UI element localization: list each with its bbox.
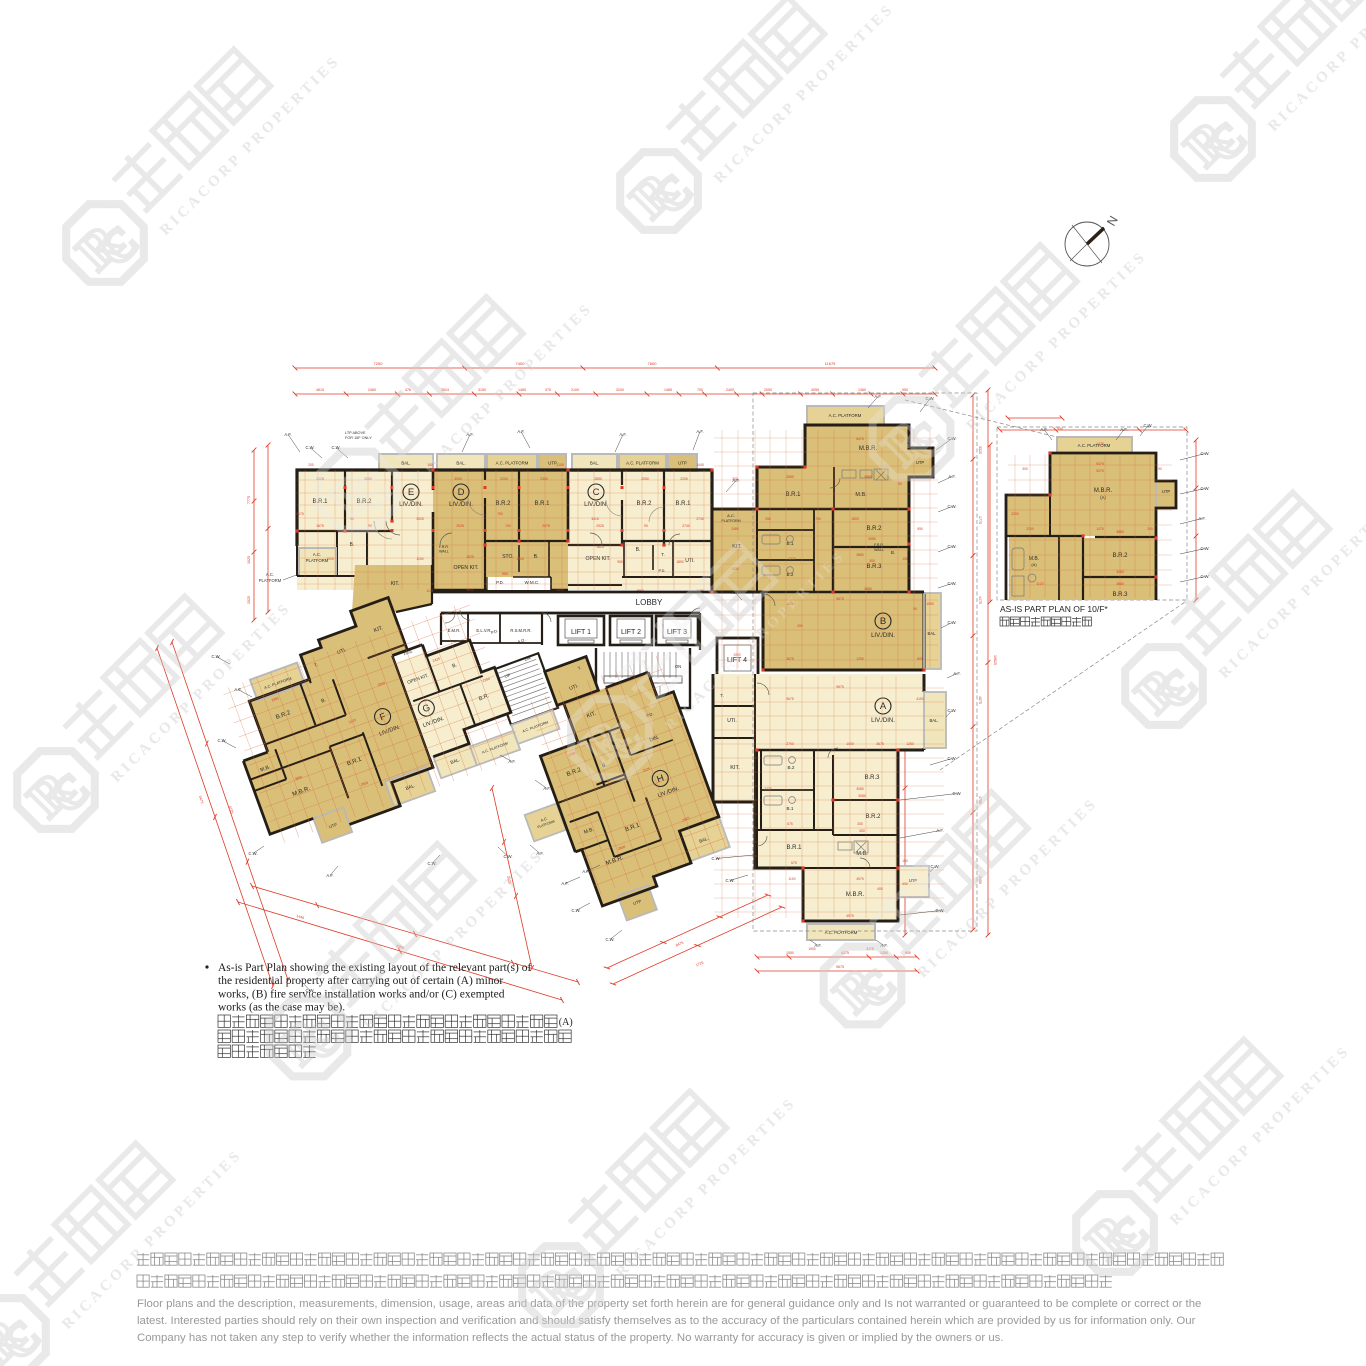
svg-text:A.F.: A.F. [543, 786, 550, 791]
svg-text:1360: 1360 [858, 388, 866, 392]
svg-text:T.: T. [661, 552, 665, 557]
svg-text:2740: 2740 [682, 524, 690, 528]
svg-text:B.R.2: B.R.2 [865, 814, 881, 820]
svg-text:1100: 1100 [426, 589, 433, 593]
svg-text:D: D [458, 487, 465, 498]
svg-text:C.W.: C.W. [947, 756, 956, 761]
svg-text:2300: 2300 [540, 477, 548, 481]
svg-text:200: 200 [1147, 527, 1153, 531]
svg-text:7250: 7250 [374, 361, 384, 366]
svg-text:4875: 4875 [978, 696, 982, 704]
svg-text:2200: 2200 [500, 477, 508, 481]
svg-text:Floor plans and the descriptio: Floor plans and the description, measure… [137, 1298, 1201, 1310]
svg-text:A.F.: A.F. [732, 478, 739, 483]
svg-text:BAL.: BAL. [401, 461, 410, 466]
svg-text:A.F.: A.F. [326, 873, 333, 878]
svg-text:B.R.1: B.R.1 [786, 845, 802, 851]
svg-text:BAL.: BAL. [590, 461, 599, 466]
svg-text:LIV./DIN.: LIV./DIN. [871, 633, 895, 639]
svg-text:C.W.: C.W. [711, 856, 720, 861]
svg-text:C.W.: C.W. [947, 708, 956, 713]
svg-text:E: E [408, 487, 414, 498]
svg-text:FOR 15F ONLY: FOR 15F ONLY [345, 436, 372, 440]
svg-text:9675: 9675 [786, 697, 794, 701]
svg-text:1446: 1446 [296, 914, 305, 920]
svg-text:A.F.: A.F. [1120, 427, 1127, 432]
svg-text:B.: B. [891, 550, 895, 555]
svg-text:B.R.1: B.R.1 [785, 492, 801, 498]
svg-text:3880: 3880 [1116, 530, 1124, 534]
svg-text:P.D.: P.D. [659, 569, 666, 573]
svg-text:3880: 3880 [856, 553, 864, 557]
svg-text:800: 800 [917, 657, 923, 661]
svg-text:C.W.: C.W. [503, 854, 512, 859]
svg-text:B.R.1: B.R.1 [534, 501, 550, 507]
svg-text:2740: 2740 [696, 517, 704, 521]
svg-text:1675: 1675 [316, 524, 324, 528]
svg-text:3150: 3150 [478, 388, 486, 392]
svg-text:LIFT 1: LIFT 1 [571, 629, 591, 636]
svg-text:A.F.: A.F. [948, 474, 955, 479]
svg-text:A.F.: A.F. [953, 671, 960, 676]
svg-text:A: A [880, 701, 887, 712]
svg-text:C.W.: C.W. [947, 544, 956, 549]
svg-text:1550: 1550 [786, 951, 794, 955]
svg-text:2175: 2175 [296, 512, 304, 516]
svg-text:3325: 3325 [978, 446, 982, 454]
svg-text:2700: 2700 [786, 742, 794, 746]
svg-text:11675: 11675 [825, 361, 837, 366]
svg-text:950: 950 [1057, 427, 1063, 431]
svg-text:4150: 4150 [916, 697, 924, 701]
svg-text:OPEN KIT.: OPEN KIT. [585, 556, 610, 562]
svg-text:A.F.: A.F. [234, 687, 241, 692]
svg-text:A.C. PLATFORM: A.C. PLATFORM [829, 413, 862, 418]
svg-text:2650: 2650 [786, 475, 794, 479]
svg-text:A.F.: A.F. [619, 432, 626, 437]
svg-text:BAL.: BAL. [927, 631, 936, 636]
svg-text:5475: 5475 [856, 437, 864, 441]
svg-text:3200: 3200 [616, 388, 624, 392]
svg-text:2200: 2200 [1026, 527, 1034, 531]
svg-text:2200: 2200 [680, 477, 688, 481]
svg-text:B.R.3: B.R.3 [864, 775, 880, 781]
svg-text:1725: 1725 [695, 961, 704, 968]
svg-text:200: 200 [308, 463, 314, 467]
svg-text:A.F.: A.F. [582, 869, 589, 874]
svg-text:675: 675 [791, 861, 797, 865]
svg-text:As-is Part Plan showing the ex: As-is Part Plan showing the existing lay… [218, 962, 531, 974]
svg-text:2460: 2460 [368, 388, 376, 392]
svg-text:3080: 3080 [868, 537, 876, 541]
svg-text:C.W.: C.W. [1200, 486, 1209, 491]
svg-text:700: 700 [697, 388, 703, 392]
svg-text:B.: B. [636, 547, 641, 553]
svg-text:300: 300 [869, 559, 875, 563]
svg-text:B.2: B.2 [788, 765, 795, 770]
svg-text:2480: 2480 [731, 527, 739, 531]
svg-text:90: 90 [644, 524, 648, 528]
svg-text:2105: 2105 [556, 463, 564, 467]
svg-text:750: 750 [497, 512, 503, 516]
svg-text:A.C.: A.C. [266, 572, 274, 577]
svg-text:LTP ABOVE: LTP ABOVE [345, 431, 366, 435]
svg-text:3880: 3880 [864, 475, 872, 479]
svg-text:B.R.3: B.R.3 [866, 564, 882, 570]
svg-text:2400: 2400 [726, 388, 734, 392]
svg-text:C: C [593, 487, 600, 498]
svg-text:C.W.: C.W. [1200, 546, 1209, 551]
svg-text:B.R.2: B.R.2 [636, 501, 652, 507]
svg-text:3880: 3880 [864, 587, 872, 591]
svg-text:B: B [880, 616, 886, 627]
svg-text:A.F.: A.F. [814, 943, 821, 948]
svg-text:A.F.: A.F. [561, 881, 568, 886]
svg-text:A.F.: A.F. [1040, 427, 1047, 432]
svg-text:B.: B. [534, 554, 539, 560]
svg-text:3415: 3415 [591, 517, 599, 521]
svg-text:C.W.: C.W. [947, 504, 956, 509]
svg-text:7775: 7775 [247, 496, 251, 504]
svg-text:1623: 1623 [596, 545, 604, 549]
svg-text:OPEN KIT.: OPEN KIT. [453, 565, 478, 571]
svg-text:1025: 1025 [247, 556, 251, 564]
svg-text:Company has not taken any step: Company has not taken any step to verify… [137, 1332, 1004, 1344]
svg-text:1775: 1775 [978, 516, 982, 524]
svg-text:BAL.: BAL. [456, 461, 465, 466]
svg-text:A.F.: A.F. [1198, 516, 1205, 521]
svg-text:A.F.: A.F. [517, 429, 524, 434]
svg-text:1800: 1800 [851, 517, 859, 521]
svg-text:1475: 1475 [1096, 527, 1104, 531]
svg-text:P.D.: P.D. [490, 628, 499, 635]
svg-text:PLATFORM: PLATFORM [259, 578, 282, 583]
svg-text:2050: 2050 [764, 388, 772, 392]
svg-text:C.W.: C.W. [725, 878, 734, 883]
svg-text:1465: 1465 [518, 388, 526, 392]
svg-text:A.C. PLATFORM: A.C. PLATFORM [496, 461, 529, 466]
svg-text:2850: 2850 [594, 477, 602, 481]
svg-text:1475: 1475 [1096, 442, 1104, 446]
svg-text:5475: 5475 [1096, 469, 1104, 473]
svg-text:N: N [1104, 214, 1121, 229]
svg-text:B.R.3: B.R.3 [1112, 592, 1128, 598]
svg-text:B.R.2: B.R.2 [495, 501, 511, 507]
svg-text:1625: 1625 [466, 555, 474, 559]
svg-text:2925: 2925 [456, 524, 464, 528]
svg-text:LOBBY: LOBBY [636, 598, 663, 607]
svg-text:R.S.M.R.R.: R.S.M.R.R. [510, 628, 531, 633]
svg-text:150: 150 [902, 557, 908, 561]
svg-text:C.W.: C.W. [952, 791, 961, 796]
svg-text:1890: 1890 [676, 560, 684, 564]
svg-text:1465: 1465 [664, 388, 672, 392]
svg-text:90: 90 [1158, 467, 1162, 471]
svg-text:4475: 4475 [978, 596, 982, 604]
svg-text:C.W.: C.W. [571, 908, 580, 913]
svg-text:4615: 4615 [316, 388, 324, 392]
svg-text:8475: 8475 [675, 941, 684, 948]
svg-text:1000: 1000 [846, 742, 854, 746]
svg-text:300: 300 [857, 822, 863, 826]
svg-text:C.W.: C.W. [1200, 574, 1209, 579]
svg-text:400: 400 [877, 887, 883, 891]
svg-text:150: 150 [902, 859, 908, 863]
svg-text:1500: 1500 [926, 602, 934, 606]
svg-text:A.C. PLATFORM: A.C. PLATFORM [626, 461, 659, 466]
svg-text:A.F.: A.F. [936, 828, 943, 833]
svg-text:A.C.: A.C. [313, 552, 321, 557]
svg-text:950: 950 [902, 388, 908, 392]
svg-text:3025: 3025 [416, 517, 424, 521]
svg-text:B.R.2: B.R.2 [866, 526, 882, 532]
svg-text:1100: 1100 [416, 557, 423, 561]
svg-text:1025: 1025 [326, 557, 334, 561]
svg-text:675: 675 [787, 822, 793, 826]
svg-text:2230: 2230 [788, 557, 796, 561]
svg-text:4725: 4725 [228, 805, 234, 814]
svg-text:3080: 3080 [858, 794, 866, 798]
svg-text:C.W.: C.W. [305, 445, 314, 450]
svg-text:latest. Interested parties sho: latest. Interested parties should rely o… [137, 1315, 1196, 1327]
svg-text:3675: 3675 [876, 742, 884, 746]
svg-text:300: 300 [1022, 467, 1028, 471]
svg-text:750: 750 [815, 517, 821, 521]
svg-text:RICACORP PROPERTIES: RICACORP PROPERTIES [1216, 495, 1366, 681]
svg-text:A.F.: A.F. [284, 432, 291, 437]
svg-text:2200: 2200 [1011, 512, 1019, 516]
svg-text:1625: 1625 [516, 557, 524, 561]
svg-text:WALL: WALL [439, 550, 449, 554]
svg-text:UTI.: UTI. [727, 718, 736, 724]
svg-text:300: 300 [859, 829, 865, 833]
svg-text:F.R.R.: F.R.R. [874, 543, 884, 547]
svg-text:19825: 19825 [993, 655, 997, 665]
svg-text:BAL.: BAL. [929, 718, 938, 723]
svg-text:F.R.R.: F.R.R. [439, 545, 449, 549]
svg-text:375: 375 [545, 388, 551, 392]
svg-text:RICACORP PROPERTIES: RICACORP PROPERTIES [1265, 0, 1366, 135]
svg-text:C.W.: C.W. [605, 937, 614, 942]
svg-text:C.W.: C.W. [947, 581, 956, 586]
svg-text:(A): (A) [1031, 562, 1037, 567]
svg-text:C.W.: C.W. [1143, 423, 1152, 428]
svg-text:C.W.: C.W. [947, 620, 956, 625]
svg-text:C.W.: C.W. [248, 851, 257, 856]
svg-text:3880: 3880 [1116, 582, 1124, 586]
svg-text:1445: 1445 [696, 463, 704, 467]
svg-text:3675: 3675 [786, 657, 794, 661]
svg-text:UTP: UTP [678, 461, 687, 466]
svg-text:2230: 2230 [764, 787, 772, 791]
svg-text:WALL: WALL [874, 548, 884, 552]
svg-text:(A): (A) [559, 1017, 573, 1028]
svg-text:C.W.: C.W. [1200, 451, 1209, 456]
svg-text:ON: ON [675, 664, 681, 669]
svg-text:200: 200 [797, 624, 803, 628]
svg-text:5475: 5475 [1096, 462, 1104, 466]
svg-text:M.B.R.: M.B.R. [846, 892, 865, 898]
svg-text:1100: 1100 [788, 877, 795, 881]
svg-text:PLATFORM: PLATFORM [306, 558, 329, 563]
svg-text:4975: 4975 [846, 914, 854, 918]
svg-text:A.F.: A.F. [508, 759, 515, 764]
svg-text:C.W.: C.W. [211, 654, 220, 659]
svg-text:LIV./DIN.: LIV./DIN. [871, 718, 895, 724]
svg-text:3080: 3080 [1116, 570, 1124, 574]
svg-text:UTP: UTP [1162, 489, 1171, 494]
svg-text:B.1: B.1 [787, 806, 794, 811]
svg-text:4055: 4055 [811, 388, 819, 392]
svg-text:3080: 3080 [856, 787, 864, 791]
svg-text:2575: 2575 [542, 524, 550, 528]
svg-text:E.M.R.: E.M.R. [448, 628, 461, 633]
svg-text:A.C. PLATFORM: A.C. PLATFORM [1078, 443, 1111, 448]
svg-text:90: 90 [898, 482, 902, 486]
svg-text:A.C.: A.C. [727, 513, 735, 518]
svg-text:KIT.: KIT. [730, 765, 740, 771]
svg-text:1250: 1250 [906, 742, 914, 746]
svg-text:B.R.1: B.R.1 [675, 501, 691, 507]
svg-text:M.B.R.: M.B.R. [1094, 488, 1113, 494]
svg-text:90: 90 [913, 607, 917, 611]
svg-text:2925: 2925 [596, 524, 604, 528]
svg-text:2025: 2025 [247, 596, 251, 604]
svg-text:1120: 1120 [1036, 582, 1043, 586]
svg-text:A.F.: A.F. [874, 394, 881, 399]
svg-text:2050: 2050 [641, 477, 649, 481]
svg-text:3000: 3000 [454, 477, 462, 481]
svg-text:9675: 9675 [836, 597, 844, 601]
svg-text:9475: 9475 [198, 795, 204, 804]
svg-text:LIFT 2: LIFT 2 [621, 629, 641, 636]
svg-text:950: 950 [502, 572, 508, 576]
svg-text:M.B.: M.B. [855, 492, 867, 498]
svg-text:950: 950 [917, 527, 923, 531]
svg-text:4975: 4975 [856, 877, 864, 881]
svg-text:1250: 1250 [856, 657, 864, 661]
svg-text:476: 476 [405, 388, 411, 392]
svg-text:7600: 7600 [648, 361, 658, 366]
svg-text:950: 950 [617, 560, 623, 564]
svg-text:9675: 9675 [836, 685, 844, 689]
svg-text:A.F.: A.F. [696, 429, 703, 434]
svg-text:(A): (A) [1100, 495, 1106, 500]
svg-text:250: 250 [765, 517, 771, 521]
svg-text:C.W.: C.W. [217, 738, 226, 743]
svg-text:AS-IS PART PLAN OF 10/F*: AS-IS PART PLAN OF 10/F* [1000, 604, 1108, 614]
svg-text:B.R.2: B.R.2 [1112, 553, 1128, 559]
svg-text:2100: 2100 [571, 388, 579, 392]
svg-text:700: 700 [505, 524, 511, 528]
